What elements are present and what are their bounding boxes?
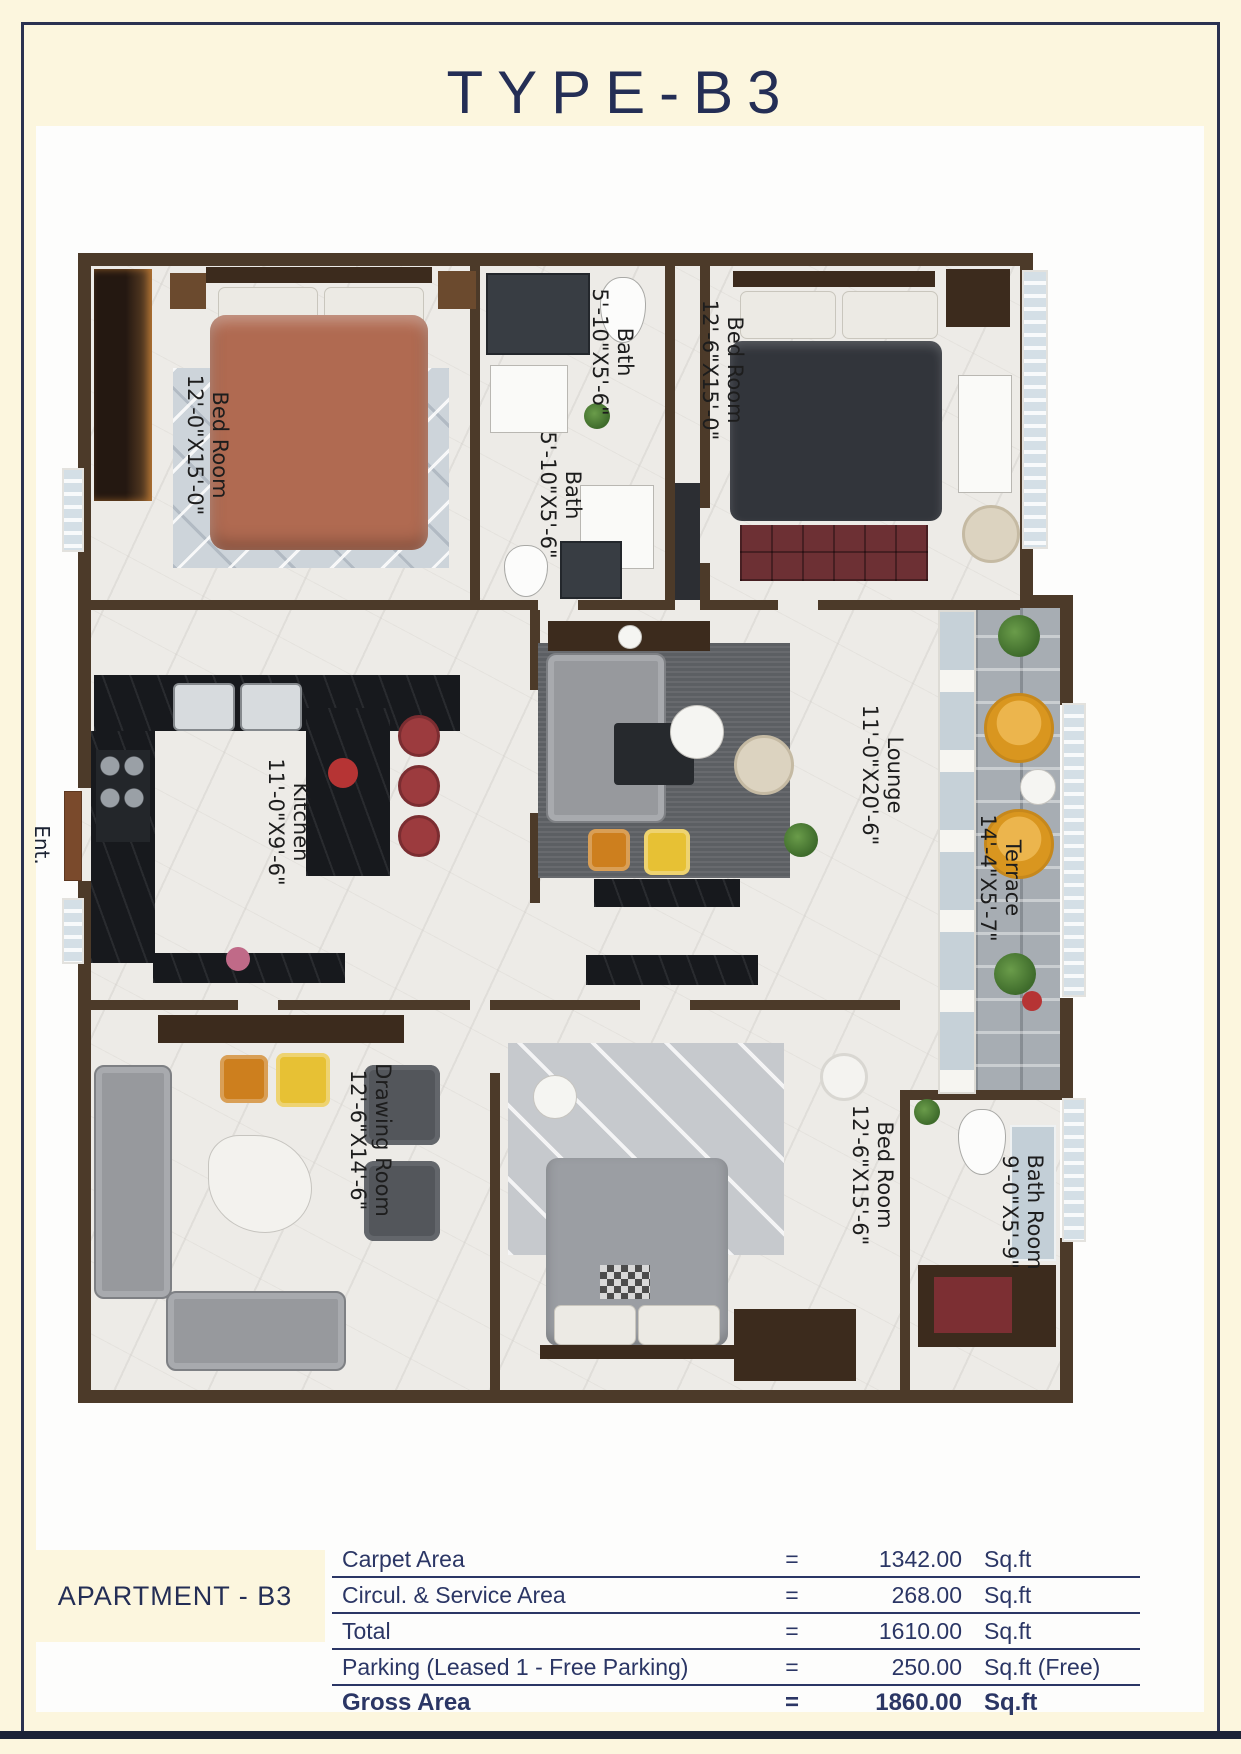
- entrance-label: Ent.: [30, 825, 54, 865]
- pillow: [842, 291, 938, 339]
- sofa: [166, 1291, 346, 1371]
- plant: [784, 823, 818, 857]
- room-label-bath-room: Bath Room 9'-0"X5'-9": [997, 1154, 1047, 1269]
- headboard: [540, 1345, 736, 1359]
- room-dims: 11'-0"X20'-6": [857, 705, 882, 846]
- apartment-badge: APARTMENT - B3: [25, 1550, 325, 1642]
- room-dims: 12'-0"X15'-0": [182, 375, 207, 516]
- room-name: Bed Room: [872, 1121, 897, 1228]
- stove: [96, 750, 150, 842]
- pot: [328, 758, 358, 788]
- wall: [578, 600, 675, 610]
- window: [62, 468, 84, 552]
- wardrobe: [94, 269, 152, 501]
- tv-unit: [946, 269, 1010, 327]
- frame-border-bottom: [0, 1731, 1241, 1739]
- bed: [210, 315, 428, 550]
- table-row-carpet-area: Carpet Area = 1342.00 Sq.ft: [332, 1542, 1140, 1578]
- room-name: Bath: [612, 328, 637, 377]
- wall: [665, 253, 675, 600]
- stool: [398, 715, 440, 757]
- window: [1022, 270, 1048, 549]
- row-value: 250.00: [822, 1654, 962, 1681]
- column: [820, 1053, 868, 1101]
- row-label: Gross Area: [332, 1689, 762, 1717]
- wall: [78, 253, 1025, 266]
- row-value: 1342.00: [822, 1546, 962, 1573]
- row-unit: Sq.ft (Free): [962, 1654, 1140, 1681]
- room-dims: 12'-6"X15'-0": [697, 300, 722, 441]
- room-dims: 12'-6"X15'-6": [847, 1105, 872, 1246]
- room-name: Lounge: [882, 736, 907, 813]
- kitchen-island: [306, 708, 390, 876]
- console: [594, 879, 740, 907]
- pillow: [554, 1305, 636, 1345]
- window: [62, 898, 84, 964]
- room-dims: 5'-10"X5'-6": [535, 431, 560, 558]
- ottoman: [220, 1055, 268, 1103]
- room-label-bed-room-1: Bed Room 12'-0"X15'-0": [182, 375, 232, 516]
- room-dims: 11'-0"X9'-6": [263, 758, 288, 885]
- room-dims: 9'-0"X5'-9": [997, 1155, 1022, 1269]
- room-name: Bed Room: [207, 391, 232, 498]
- bench: [740, 525, 928, 581]
- side-table: [170, 273, 206, 309]
- room-dims: 14'-4"X5'-7": [975, 814, 1000, 941]
- dresser: [958, 375, 1012, 493]
- plant: [914, 1099, 940, 1125]
- wall: [78, 600, 538, 610]
- room-label-bath-1: Bath 5'-10"X5'-6": [587, 288, 637, 415]
- ottoman: [588, 829, 630, 871]
- room-name: Bed Room: [722, 316, 747, 423]
- room-name: Bath Room: [1022, 1154, 1047, 1269]
- frame-border-top: [21, 22, 1220, 25]
- room-name: Drawing Room: [370, 1063, 395, 1217]
- room-name: Terrace: [1000, 840, 1025, 916]
- chair: [962, 505, 1020, 563]
- row-value: 268.00: [822, 1582, 962, 1609]
- room-name: Bath: [560, 471, 585, 520]
- window: [1062, 1098, 1086, 1242]
- pot: [1022, 991, 1042, 1011]
- wall: [900, 1090, 910, 1403]
- room-dims: 12'-6"X14'-6": [345, 1070, 370, 1211]
- side-table: [438, 271, 476, 309]
- equals-sign: =: [762, 1582, 822, 1609]
- equals-sign: =: [762, 1618, 822, 1645]
- table-row-total: Total = 1610.00 Sq.ft: [332, 1614, 1140, 1650]
- plant: [998, 615, 1040, 657]
- wall: [490, 1000, 640, 1010]
- bed: [730, 341, 942, 521]
- equals-sign: =: [762, 1546, 822, 1573]
- wall: [818, 600, 1020, 610]
- room-name: Kitchen: [288, 783, 313, 862]
- patio-chair: [984, 693, 1054, 763]
- terrace-window-wall: [938, 610, 976, 1094]
- equals-sign: =: [762, 1654, 822, 1681]
- equals-sign: =: [762, 1689, 822, 1717]
- table-row-gross-area: Gross Area = 1860.00 Sq.ft: [332, 1686, 1140, 1720]
- row-label: Parking (Leased 1 - Free Parking): [332, 1654, 762, 1681]
- row-value: 1860.00: [822, 1689, 962, 1717]
- headboard: [733, 271, 935, 287]
- ottoman: [276, 1053, 330, 1107]
- sink: [240, 683, 302, 731]
- console: [158, 1015, 404, 1043]
- pillow: [638, 1305, 720, 1345]
- room-label-lounge: Lounge 11'-0"X20'-6": [857, 705, 907, 846]
- area-table: Carpet Area = 1342.00 Sq.ft Circul. & Se…: [332, 1542, 1140, 1720]
- row-value: 1610.00: [822, 1618, 962, 1645]
- headboard: [206, 267, 432, 283]
- row-label: Carpet Area: [332, 1546, 762, 1573]
- patio-table: [1020, 769, 1056, 805]
- lamp: [618, 625, 642, 649]
- plant: [994, 953, 1036, 995]
- row-label: Total: [332, 1618, 762, 1645]
- wall: [1060, 595, 1073, 705]
- table-row-parking: Parking (Leased 1 - Free Parking) = 250.…: [332, 1650, 1140, 1686]
- flowers: [226, 947, 250, 971]
- sink: [173, 683, 235, 731]
- service-shaft: [675, 483, 700, 600]
- pillow: [600, 1265, 650, 1299]
- row-label: Circul. & Service Area: [332, 1582, 762, 1609]
- vanity: [490, 365, 568, 433]
- sofa: [94, 1065, 172, 1299]
- wall: [1060, 1238, 1073, 1403]
- row-unit: Sq.ft: [962, 1689, 1140, 1717]
- room-label-kitchen: Kitchen 11'-0"X9'-6": [263, 758, 313, 885]
- room-label-bath-2: Bath 5'-10"X5'-6": [535, 431, 585, 558]
- side-table: [670, 705, 724, 759]
- brochure-page: { "page": { "title": "TYPE-B3", "apartme…: [0, 0, 1241, 1754]
- wall: [278, 1000, 470, 1010]
- armchair: [734, 735, 794, 795]
- shower: [486, 273, 590, 355]
- room-label-terrace: Terrace 14'-4"X5'-7": [975, 814, 1025, 941]
- ottoman: [644, 829, 690, 875]
- stool: [398, 815, 440, 857]
- frame-border-right: [1217, 22, 1220, 1734]
- room-label-bed-room-2: Bed Room 12'-6"X15'-0": [697, 300, 747, 441]
- cabinet: [934, 1277, 1012, 1333]
- stool: [398, 765, 440, 807]
- wall: [1060, 998, 1073, 1098]
- room-dims: 5'-10"X5'-6": [587, 288, 612, 415]
- room-label-drawing-room: Drawing Room 12'-6"X14'-6": [345, 1063, 395, 1217]
- window: [1062, 703, 1086, 997]
- row-unit: Sq.ft: [962, 1582, 1140, 1609]
- wall: [700, 600, 778, 610]
- console: [586, 955, 758, 985]
- row-unit: Sq.ft: [962, 1618, 1140, 1645]
- table-row-circul-service-area: Circul. & Service Area = 268.00 Sq.ft: [332, 1578, 1140, 1614]
- wall: [490, 1073, 500, 1403]
- frame-border-left: [21, 22, 24, 1734]
- entrance-door: [64, 791, 82, 881]
- pillow: [740, 291, 836, 339]
- room-label-bed-room-3: Bed Room 12'-6"X15'-6": [847, 1105, 897, 1246]
- wall: [78, 1000, 238, 1010]
- page-title: TYPE-B3: [0, 58, 1241, 127]
- row-unit: Sq.ft: [962, 1546, 1140, 1573]
- wardrobe: [734, 1309, 856, 1381]
- wall: [78, 1390, 1073, 1403]
- wall: [690, 1000, 900, 1010]
- side-table: [533, 1075, 577, 1119]
